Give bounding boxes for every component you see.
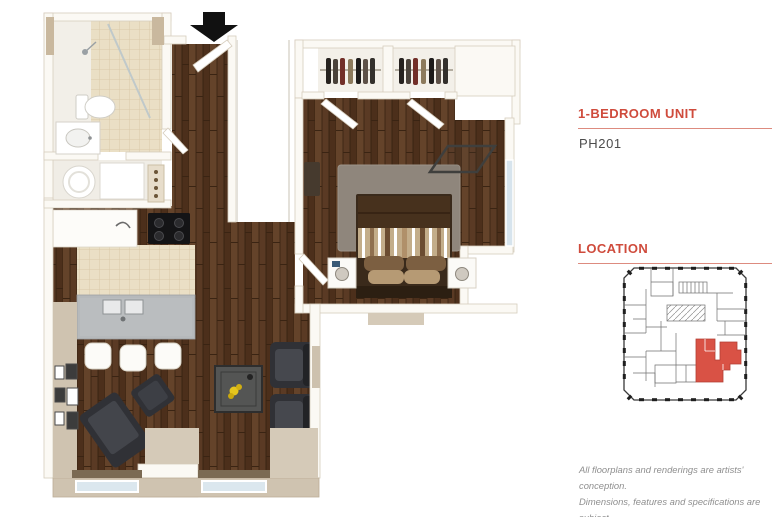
- bedroom-window: [506, 160, 513, 246]
- pillow: [368, 270, 404, 284]
- location-heading: LOCATION: [578, 241, 772, 264]
- building-outline: [624, 268, 746, 400]
- art-frames: [55, 364, 78, 429]
- floorplan-rendering: [0, 0, 560, 517]
- bar-stools: [85, 343, 181, 371]
- washer: [63, 166, 95, 198]
- location-map: [621, 265, 749, 405]
- laundry-counter: [100, 163, 144, 199]
- island-sink: [103, 300, 121, 314]
- nightstand: [328, 258, 356, 288]
- laundry-closet: [63, 163, 164, 202]
- kitchen-counter: [53, 210, 137, 247]
- disclaimer-line: Dimensions, features and specifications …: [579, 494, 779, 517]
- armchair: [270, 342, 316, 388]
- unit-number: PH201: [579, 136, 622, 151]
- coffee-table: [215, 366, 262, 412]
- bench: [304, 162, 320, 196]
- location-map-svg: [621, 265, 749, 405]
- stove: [148, 213, 190, 244]
- disclaimer-line: All floorplans and renderings are artist…: [579, 462, 779, 494]
- living-window: [202, 481, 266, 492]
- disclaimer: All floorplans and renderings are artist…: [579, 462, 779, 517]
- pillow: [364, 256, 404, 271]
- unit-type-heading: 1-BEDROOM UNIT: [578, 106, 772, 129]
- kitchen-tile: [77, 245, 195, 295]
- headboard: [356, 286, 452, 298]
- floorplan-svg: [0, 0, 560, 517]
- living-window: [76, 481, 138, 492]
- pillow: [406, 256, 446, 271]
- info-panel: 1-BEDROOM UNIT PH201 LOCATION: [578, 0, 772, 517]
- pillow: [404, 270, 440, 284]
- nightstand: [448, 258, 476, 288]
- floorplan-page: 1-BEDROOM UNIT PH201 LOCATION: [0, 0, 780, 517]
- bed: [356, 194, 452, 298]
